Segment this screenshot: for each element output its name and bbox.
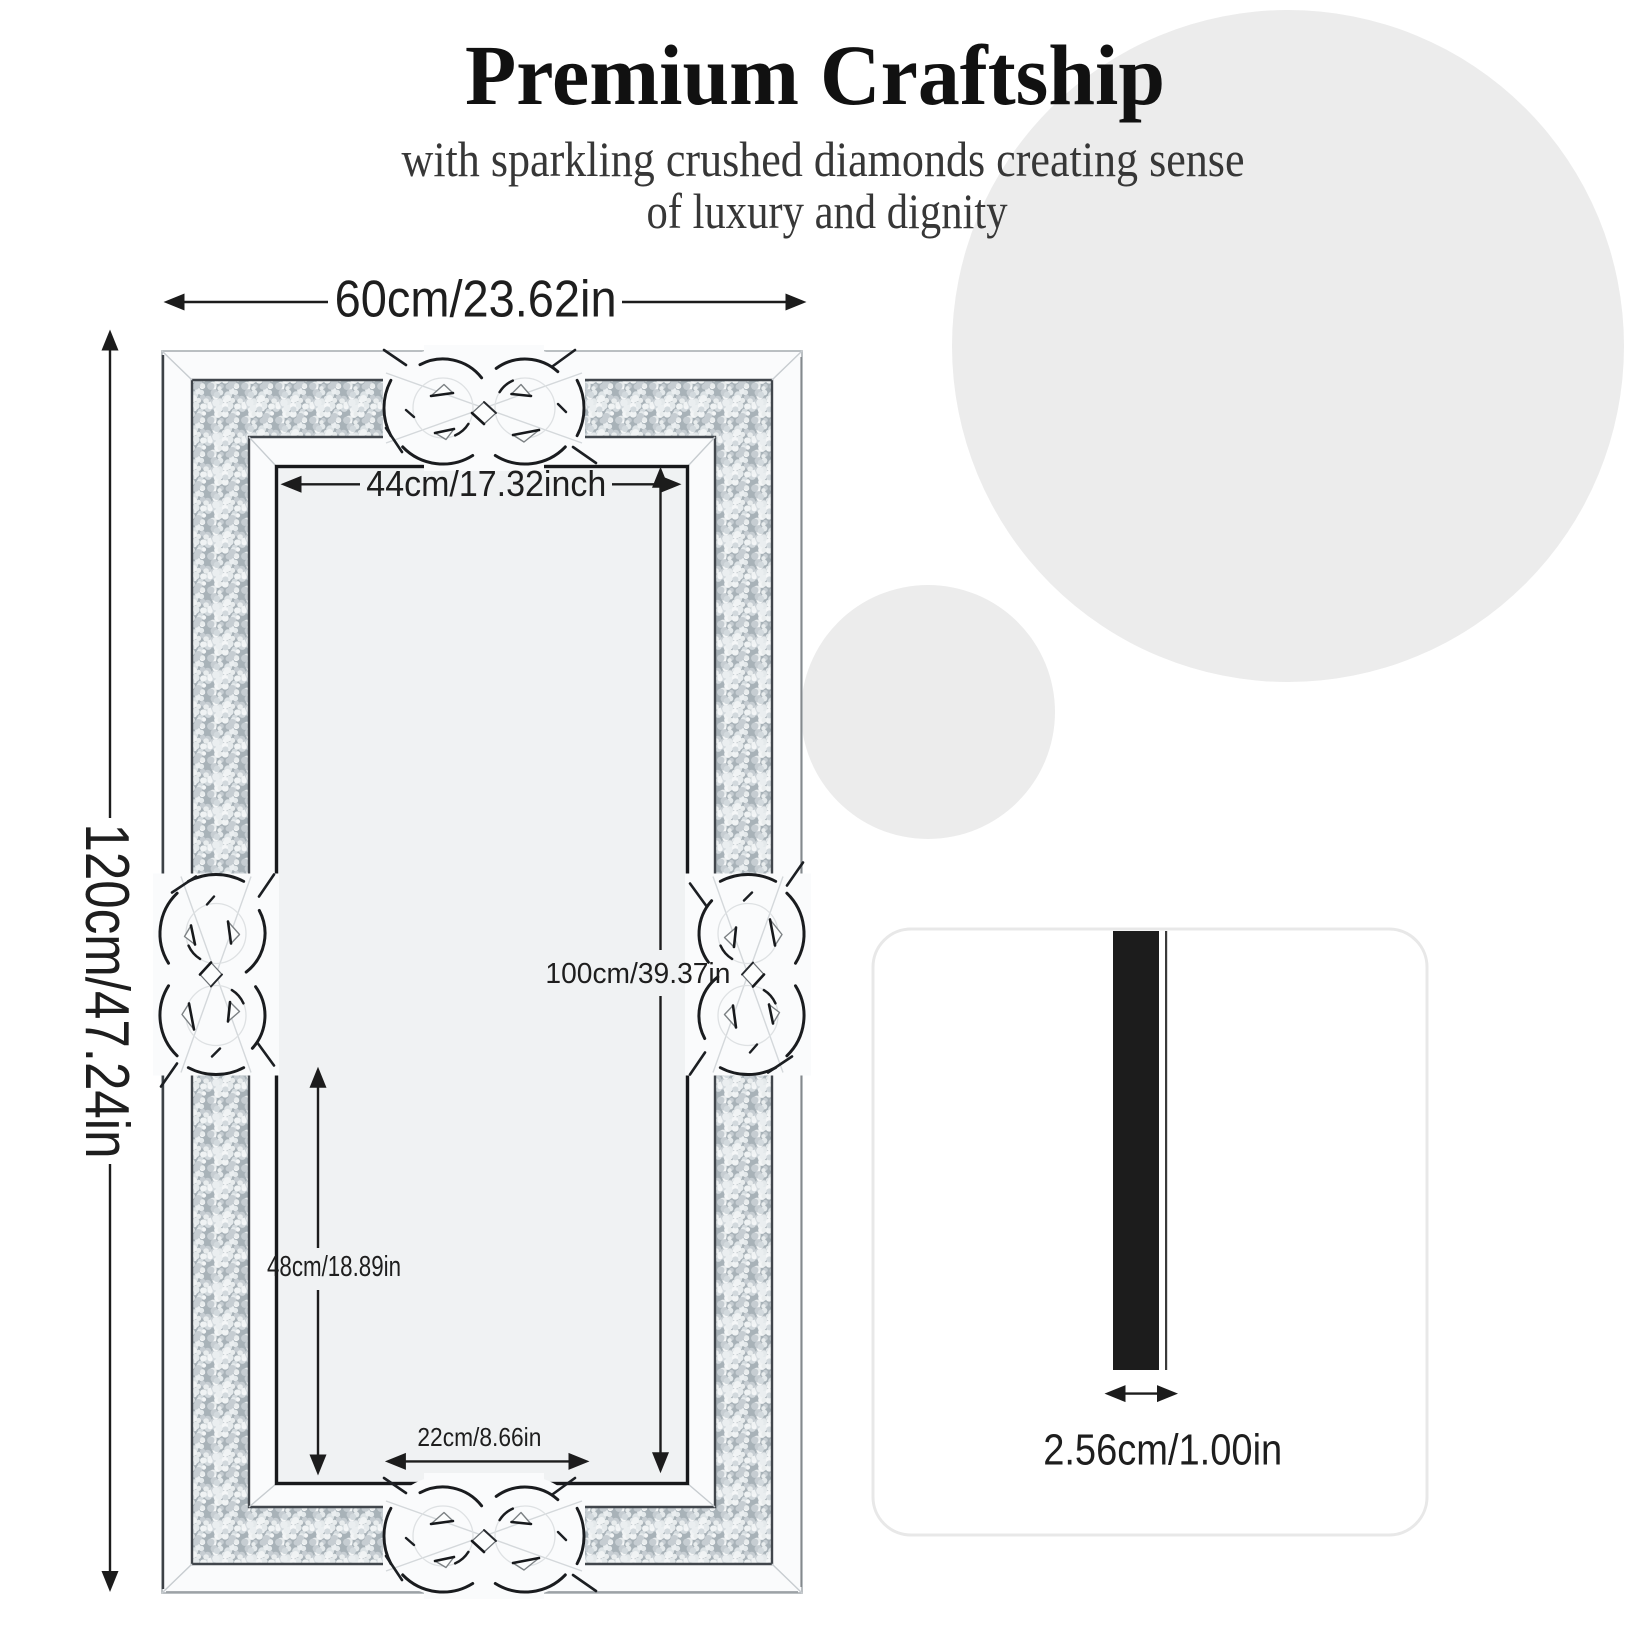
svg-text:44cm/17.32inch: 44cm/17.32inch bbox=[366, 463, 606, 504]
svg-text:120cm/47.24in: 120cm/47.24in bbox=[72, 824, 141, 1159]
svg-text:60cm/23.62in: 60cm/23.62in bbox=[335, 271, 617, 329]
svg-text:22cm/8.66in: 22cm/8.66in bbox=[417, 1422, 541, 1452]
svg-text:with sparkling crushed diamond: with sparkling crushed diamonds creating… bbox=[402, 131, 1245, 187]
svg-text:48cm/18.89in: 48cm/18.89in bbox=[267, 1251, 401, 1283]
svg-text:of luxury and dignity: of luxury and dignity bbox=[647, 183, 1008, 239]
svg-text:Premium Craftship: Premium Craftship bbox=[465, 27, 1165, 123]
svg-text:100cm/39.37in: 100cm/39.37in bbox=[545, 958, 730, 990]
svg-text:2.56cm/1.00in: 2.56cm/1.00in bbox=[1043, 1426, 1282, 1475]
